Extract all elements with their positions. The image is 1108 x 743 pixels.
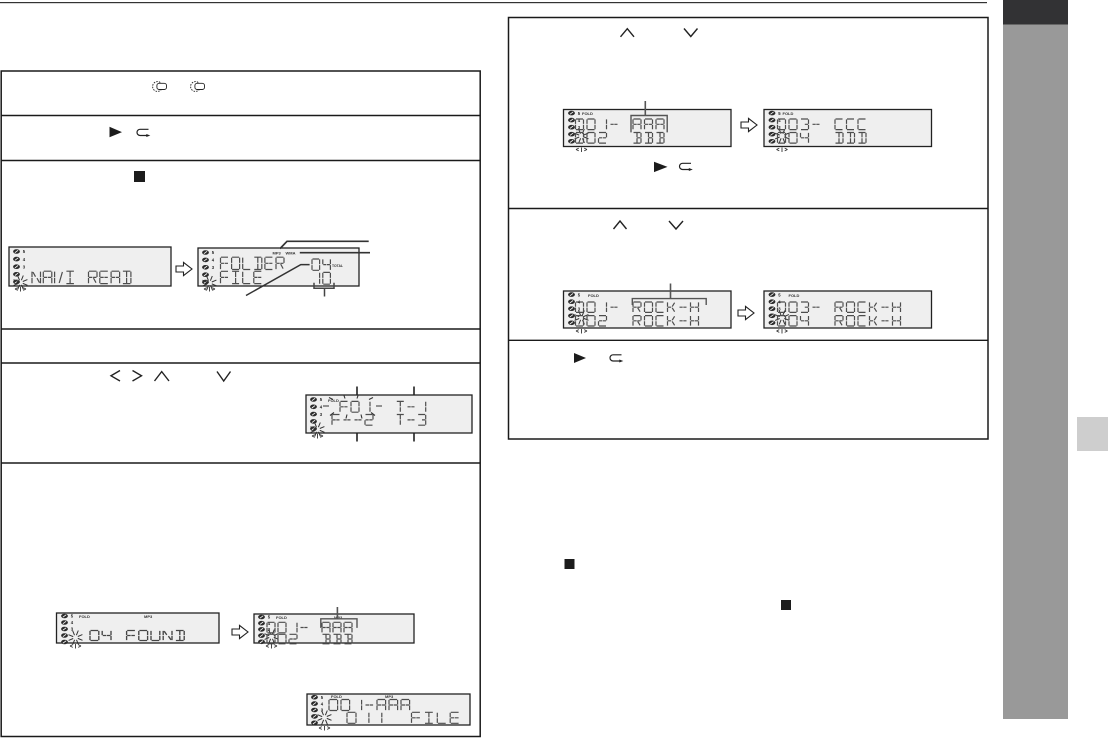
svg-text:FOLD: FOLD: [783, 111, 794, 116]
svg-text:MP3: MP3: [385, 694, 394, 699]
svg-text:FOLD: FOLD: [331, 694, 342, 699]
svg-text:FOLD: FOLD: [789, 293, 800, 298]
svg-text:FOLD: FOLD: [328, 398, 339, 403]
svg-text:FOLD: FOLD: [79, 614, 90, 619]
svg-text:MP3: MP3: [273, 251, 282, 256]
svg-text:TOTAL: TOTAL: [332, 264, 343, 268]
svg-text:WMA: WMA: [286, 251, 296, 256]
svg-text:FOLD: FOLD: [276, 615, 287, 620]
svg-text:FOLD: FOLD: [588, 293, 599, 298]
svg-text:MP3: MP3: [144, 614, 153, 619]
svg-text:FOLD: FOLD: [582, 111, 593, 116]
